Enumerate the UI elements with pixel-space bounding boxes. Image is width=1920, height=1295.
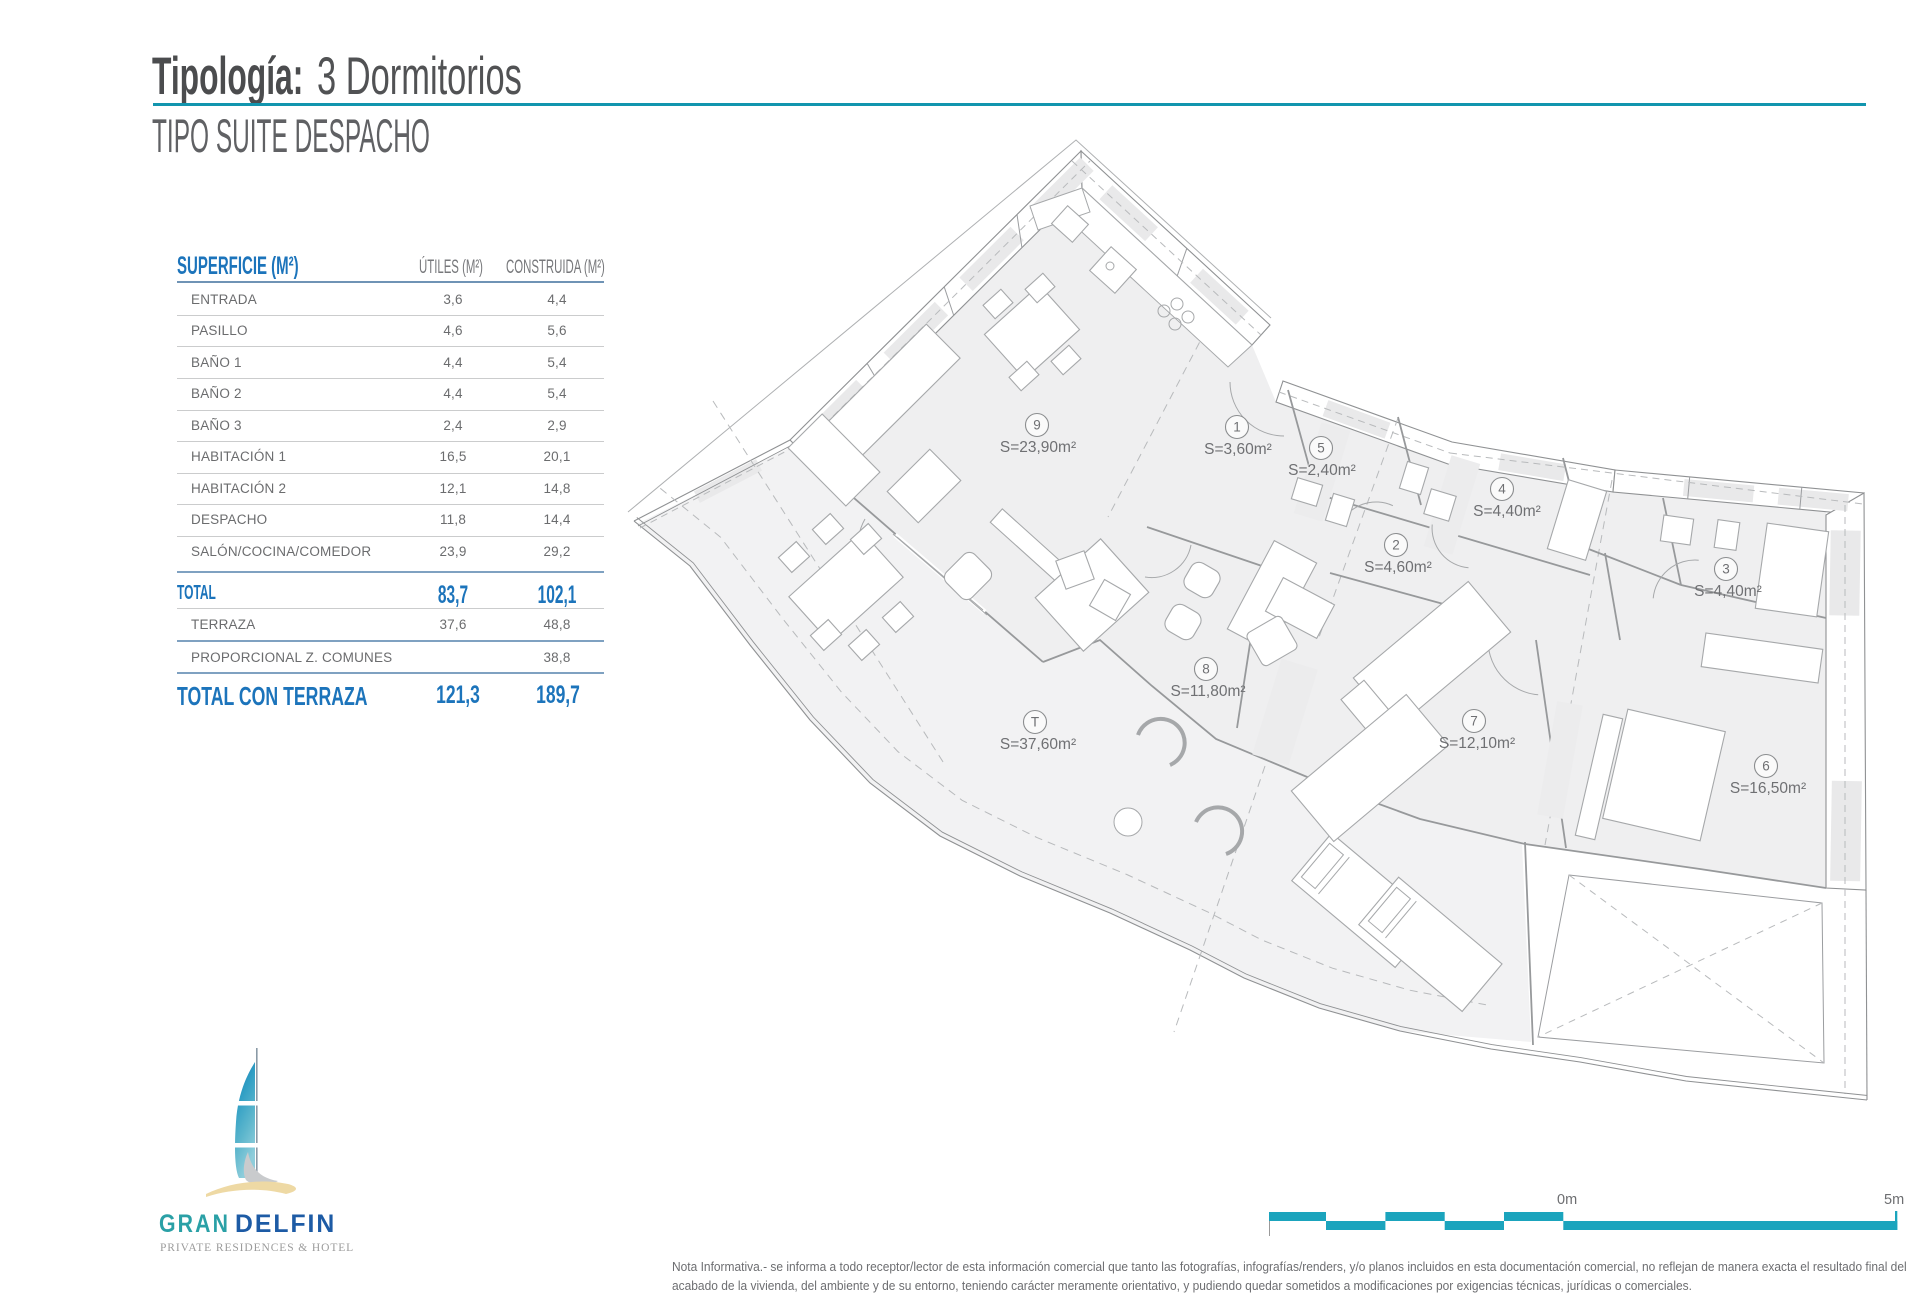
svg-text:5m: 5m (1884, 1192, 1904, 1208)
svg-text:S=2,40m²: S=2,40m² (1288, 462, 1356, 479)
svg-text:S=37,60m²: S=37,60m² (1000, 736, 1076, 753)
svg-text:S=4,60m²: S=4,60m² (1364, 559, 1432, 576)
svg-text:5: 5 (1317, 441, 1325, 456)
svg-text:1: 1 (1233, 420, 1241, 435)
svg-text:S=23,90m²: S=23,90m² (1000, 439, 1076, 456)
svg-text:4: 4 (1498, 482, 1506, 497)
svg-text:S=11,80m²: S=11,80m² (1170, 683, 1245, 700)
svg-text:S=16,50m²: S=16,50m² (1730, 780, 1806, 797)
svg-text:S=4,40m²: S=4,40m² (1473, 503, 1541, 520)
svg-text:S=12,10m²: S=12,10m² (1439, 735, 1515, 752)
svg-text:S=3,60m²: S=3,60m² (1204, 441, 1272, 458)
svg-text:T: T (1031, 715, 1039, 730)
svg-text:9: 9 (1033, 418, 1041, 433)
svg-text:S=4,40m²: S=4,40m² (1694, 583, 1762, 600)
svg-text:8: 8 (1202, 662, 1210, 677)
svg-text:0m: 0m (1557, 1192, 1577, 1208)
svg-text:6: 6 (1762, 759, 1770, 774)
svg-text:3: 3 (1722, 562, 1730, 577)
svg-text:7: 7 (1470, 714, 1478, 729)
svg-text:2: 2 (1392, 538, 1400, 553)
